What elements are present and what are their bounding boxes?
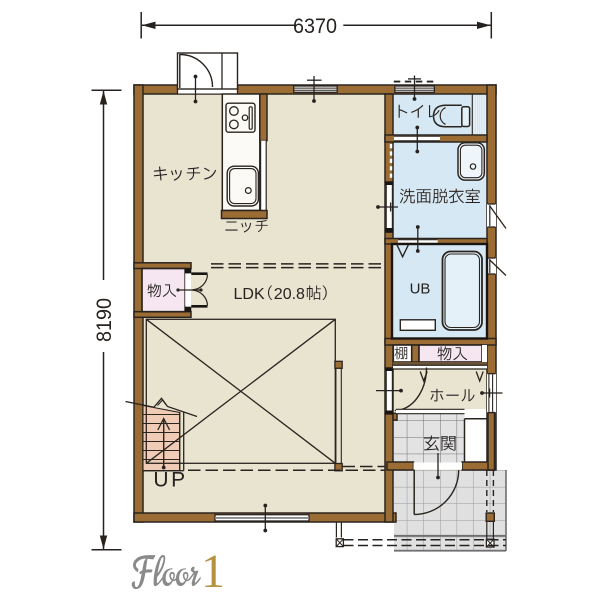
svg-text:6370: 6370 [293, 15, 337, 38]
svg-text:LDK: LDK [234, 286, 265, 303]
svg-text:1: 1 [201, 545, 225, 598]
svg-text:8190: 8190 [93, 298, 116, 342]
svg-text:20.8: 20.8 [274, 286, 305, 303]
svg-text:UP: UP [153, 469, 187, 492]
svg-text:UB: UB [410, 281, 431, 298]
